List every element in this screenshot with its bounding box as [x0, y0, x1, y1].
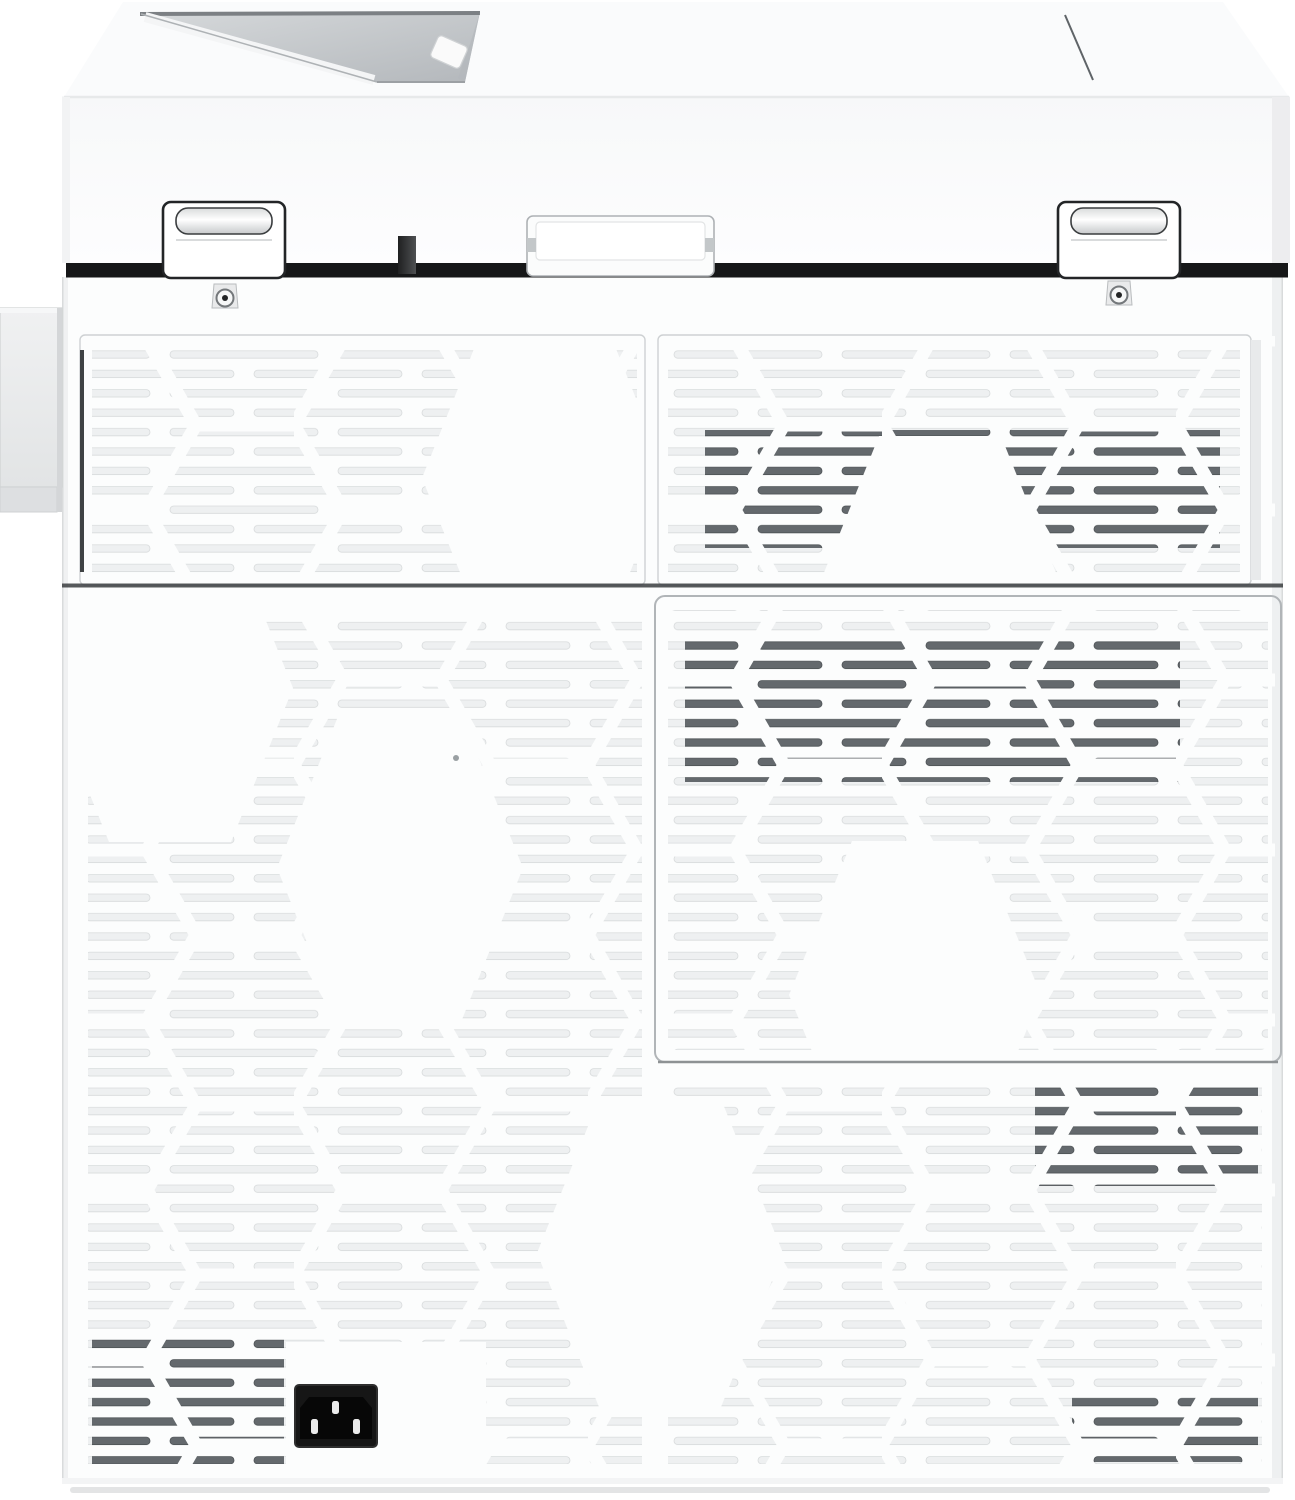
center-latch: [527, 216, 714, 276]
screw-left: [212, 284, 238, 308]
printer-photo: [0, 0, 1295, 1500]
power-pin-line: [353, 1419, 360, 1434]
tiny-screw-dot: [453, 755, 459, 761]
hinge-left: [163, 202, 285, 278]
hinge-right: [1058, 202, 1180, 278]
power-pin-earth: [332, 1401, 339, 1414]
side-handle: [0, 308, 62, 512]
hex-lattice-overlay: [70, 336, 1275, 1472]
power-pin-neutral: [311, 1419, 318, 1434]
screw-right: [1106, 281, 1132, 305]
power-inlet: [295, 1385, 377, 1447]
top-cover: [62, 2, 1290, 278]
vent-grilles: [47, 324, 1275, 1472]
ground-shadow: [62, 1478, 1283, 1493]
mid-seam-line: [62, 584, 1283, 588]
lock-post: [398, 236, 416, 274]
upper-panel-right-shadow: [1251, 340, 1261, 580]
upper-panel-left-accent: [80, 350, 84, 572]
